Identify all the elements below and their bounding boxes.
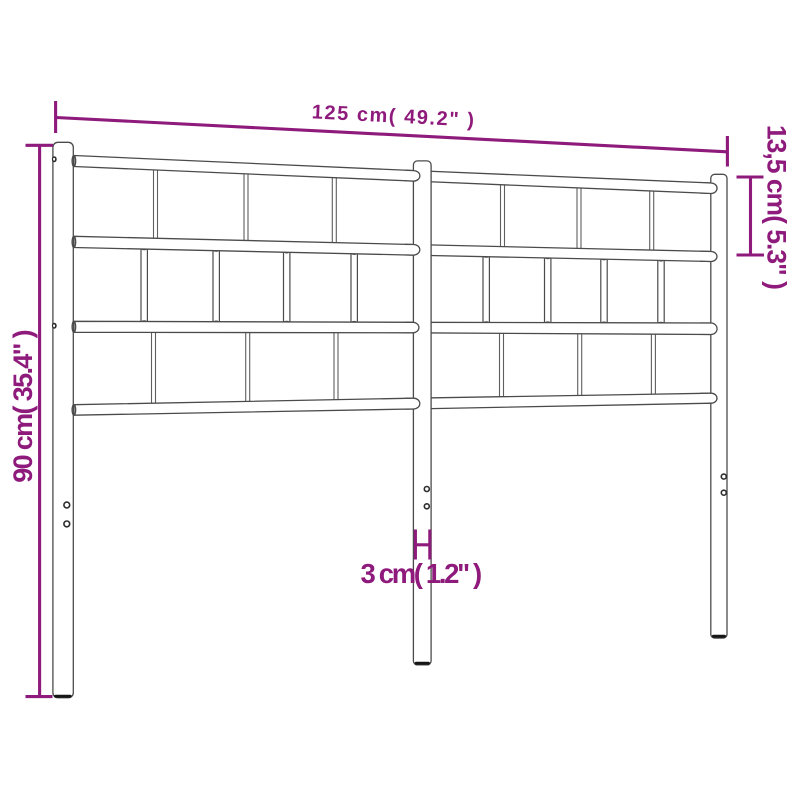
svg-text:3 cm( 1.2" ): 3 cm( 1.2" ) bbox=[361, 558, 482, 589]
svg-text:13,5 cm( 5.3" ): 13,5 cm( 5.3" ) bbox=[762, 125, 792, 289]
svg-text:90 cm( 35.4" ): 90 cm( 35.4" ) bbox=[8, 330, 38, 482]
